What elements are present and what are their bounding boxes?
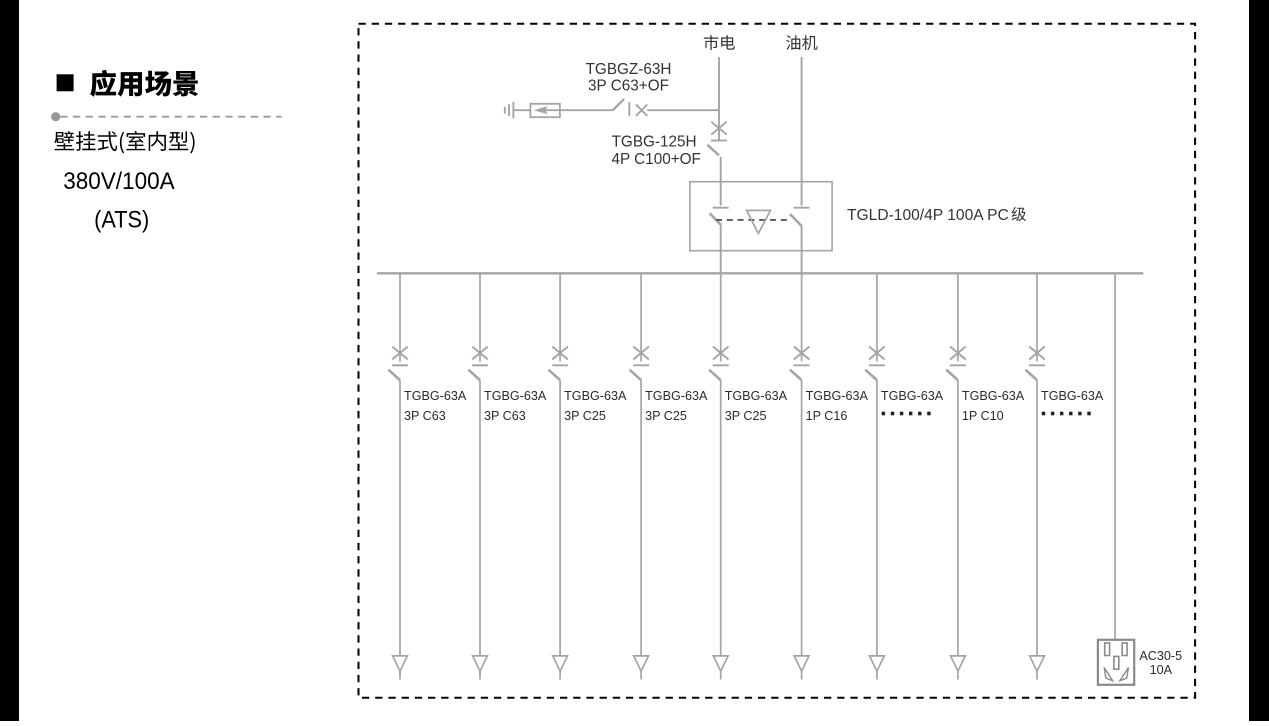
svg-text:(ATS): (ATS) xyxy=(94,207,149,234)
svg-text:TGBG-63A: TGBG-63A xyxy=(1041,389,1104,403)
svg-text:TGBG-63A: TGBG-63A xyxy=(564,389,627,403)
svg-text:3P C63+OF: 3P C63+OF xyxy=(588,78,669,95)
svg-text:TGBG-63A: TGBG-63A xyxy=(484,389,547,403)
svg-text:3P C63: 3P C63 xyxy=(484,409,526,423)
svg-text:10A: 10A xyxy=(1150,663,1173,677)
svg-text:AC30-5: AC30-5 xyxy=(1139,649,1182,663)
svg-text:3P C25: 3P C25 xyxy=(564,409,606,423)
svg-text:4P C100+OF: 4P C100+OF xyxy=(611,151,700,168)
svg-text:1P C10: 1P C10 xyxy=(962,409,1004,423)
svg-text:TGBG-63A: TGBG-63A xyxy=(881,389,944,403)
svg-text:1P C16: 1P C16 xyxy=(806,409,848,423)
svg-text:TGBG-63A: TGBG-63A xyxy=(725,389,788,403)
svg-text:TGBG-63A: TGBG-63A xyxy=(645,389,708,403)
svg-text:TGLD-100/4P 100A PC: TGLD-100/4P 100A PC xyxy=(847,207,1009,224)
svg-text:TGBG-63A: TGBG-63A xyxy=(404,389,467,403)
svg-text:TGBG-63A: TGBG-63A xyxy=(962,389,1025,403)
svg-text:380V/100A: 380V/100A xyxy=(63,168,175,195)
svg-text:3P C25: 3P C25 xyxy=(725,409,767,423)
svg-text:3P C63: 3P C63 xyxy=(404,409,446,423)
svg-text:TGBG-63A: TGBG-63A xyxy=(806,389,869,403)
svg-text:3P C25: 3P C25 xyxy=(645,409,687,423)
svg-text:TGBG-125H: TGBG-125H xyxy=(612,133,697,150)
svg-text:TGBGZ-63H: TGBGZ-63H xyxy=(586,61,672,78)
